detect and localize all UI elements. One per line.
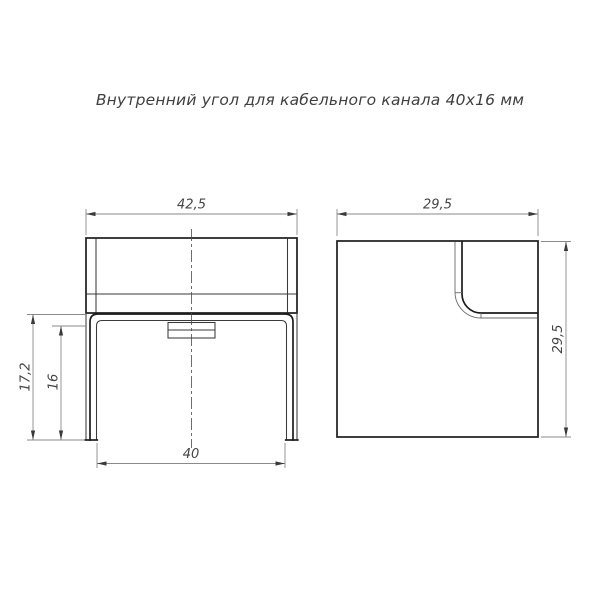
arrow-top (59, 326, 63, 336)
arrow-top (31, 315, 35, 325)
front-dim-width-bottom: 40 (97, 443, 285, 468)
dim-label: 29,5 (551, 325, 566, 354)
arrow-left (337, 212, 347, 216)
technical-drawing: Внутренний угол для кабельного канала 40… (0, 0, 600, 600)
arrow-left (86, 212, 96, 216)
dim-label: 17,2 (19, 363, 34, 392)
side-view: 29,5 29,5 (337, 198, 571, 438)
arrow-bottom (564, 428, 568, 438)
dim-label: 42,5 (177, 198, 206, 213)
arrow-bottom (31, 431, 35, 441)
front-dim-height-inner: 16 (47, 326, 88, 440)
front-view: 42,5 17,2 16 40 (19, 198, 298, 469)
side-body-outline (337, 241, 538, 437)
arrow-right (276, 461, 286, 465)
arrow-right (288, 212, 298, 216)
side-dim-height-right: 29,5 (541, 242, 571, 438)
arrow-top (564, 242, 568, 252)
side-dim-width-top: 29,5 (337, 198, 538, 237)
arrow-left (97, 461, 107, 465)
drawing-svg: Внутренний угол для кабельного канала 40… (0, 0, 600, 600)
arrow-bottom (59, 431, 63, 441)
drawing-title: Внутренний угол для кабельного канала 40… (96, 91, 524, 109)
dim-label: 29,5 (423, 198, 452, 213)
side-corner-profile-inner (462, 242, 538, 313)
arrow-right (529, 212, 539, 216)
dim-label: 16 (47, 374, 62, 391)
dim-label: 40 (183, 447, 200, 462)
